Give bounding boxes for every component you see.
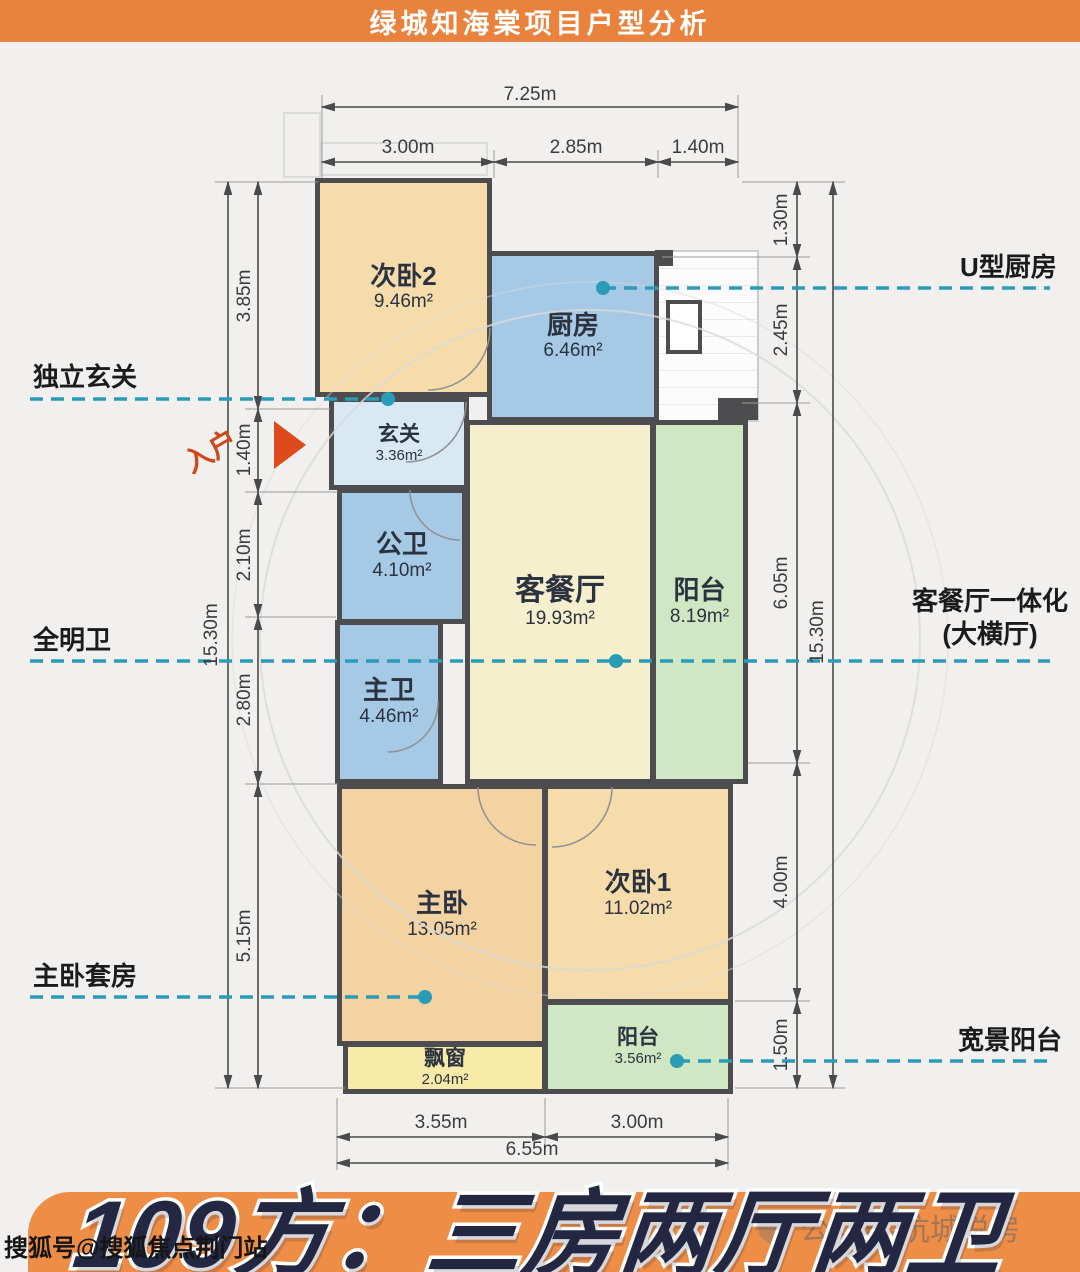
room-name: 飘窗 — [424, 1047, 466, 1070]
room-label: 次卧1 11.02m² — [604, 868, 672, 919]
watermark-sohu: 搜狐号@搜狐焦点荆门站 — [4, 1228, 267, 1263]
room-master-bedroom: 主卧 13.05m² — [337, 784, 547, 1046]
entry-arrow-icon — [274, 421, 306, 469]
dim-right-total: 15.30m — [807, 600, 829, 663]
room-label: 主卧 13.05m² — [407, 889, 477, 940]
dim-left-5: 5.15m — [234, 910, 256, 963]
callout-wide-balcony: 宽景阳台 — [958, 1020, 1062, 1057]
room-bedroom-2: 次卧2 9.46m² — [315, 178, 492, 397]
dim-left-3: 2.10m — [234, 529, 256, 582]
room-label: 客餐厅 19.93m² — [515, 574, 605, 630]
room-bay-window: 飘窗 2.04m² — [343, 1042, 547, 1094]
room-area: 11.02m² — [604, 899, 672, 920]
room-label: 阳台 8.19m² — [670, 576, 729, 627]
room-area: 9.46m² — [374, 292, 433, 313]
room-label: 公卫 4.10m² — [372, 530, 431, 581]
room-name: 厨房 — [547, 311, 599, 340]
dim-top-3: 1.40m — [672, 137, 725, 159]
dim-top-2: 2.85m — [550, 137, 603, 159]
callout-bright-bathroom: 全明卫 — [33, 620, 111, 657]
poster-canvas: 绿城知海棠项目户型分析 次卧2 9.46m² 厨房 6.46m² 玄关 3.36… — [0, 0, 1080, 1272]
room-area: 3.36m² — [376, 448, 423, 465]
room-label: 主卫 4.46m² — [359, 676, 418, 727]
room-balcony-south: 阳台 3.56m² — [543, 1000, 733, 1094]
callout-u-kitchen: U型厨房 — [960, 247, 1057, 284]
room-label: 飘窗 2.04m² — [422, 1047, 469, 1089]
dim-left-total: 15.30m — [201, 603, 223, 666]
room-master-bath: 主卫 4.46m² — [335, 620, 443, 784]
room-kitchen: 厨房 6.46m² — [487, 251, 659, 422]
room-name: 主卫 — [363, 676, 415, 705]
wall-pier — [718, 398, 758, 420]
room-area: 4.10m² — [372, 561, 431, 582]
page-title: 绿城知海棠项目户型分析 — [370, 2, 711, 41]
room-balcony-main: 阳台 8.19m² — [651, 420, 748, 784]
room-label: 阳台 3.56m² — [615, 1026, 662, 1068]
dim-top-1: 3.00m — [382, 137, 435, 159]
room-area: 4.46m² — [359, 707, 418, 728]
room-name: 玄关 — [378, 423, 420, 446]
room-area: 8.19m² — [670, 607, 729, 628]
dim-right-3: 6.05m — [771, 557, 793, 610]
room-foyer: 玄关 3.36m² — [329, 397, 469, 490]
dim-bottom-2: 3.00m — [611, 1112, 664, 1134]
room-name: 阳台 — [617, 1026, 659, 1049]
dim-right-4: 4.00m — [771, 856, 793, 909]
callout-integrated-living-line1: 客餐厅一体化 — [900, 585, 1080, 618]
callout-integrated-living-line2: (大横厅) — [900, 618, 1080, 651]
room-area: 13.05m² — [407, 920, 477, 941]
room-name: 阳台 — [673, 576, 725, 605]
room-bedroom-1: 次卧1 11.02m² — [543, 784, 733, 1004]
room-label: 玄关 3.36m² — [376, 423, 423, 465]
dim-right-5: 1.50m — [771, 1019, 793, 1072]
room-area: 2.04m² — [422, 1072, 469, 1089]
room-guest-bath: 公卫 4.10m² — [337, 488, 467, 624]
callout-integrated-living: 客餐厅一体化 (大横厅) — [900, 585, 1080, 650]
room-name: 公卫 — [376, 530, 428, 559]
dim-right-2: 2.45m — [771, 304, 793, 357]
room-label: 厨房 6.46m² — [543, 311, 602, 362]
dim-left-4: 2.80m — [234, 674, 256, 727]
callout-independent-foyer: 独立玄关 — [33, 357, 137, 394]
room-name: 客餐厅 — [515, 574, 605, 607]
room-name: 次卧1 — [605, 868, 671, 897]
room-area: 19.93m² — [525, 609, 595, 630]
dim-top-total: 7.25m — [504, 84, 557, 106]
room-area: 3.56m² — [615, 1051, 662, 1068]
shaft-box — [666, 300, 702, 354]
dim-bottom-1: 3.55m — [415, 1112, 468, 1134]
room-name: 主卧 — [416, 889, 468, 918]
room-label: 次卧2 9.46m² — [370, 262, 436, 313]
header-banner: 绿城知海棠项目户型分析 — [0, 0, 1080, 42]
dim-right-1: 1.30m — [771, 194, 793, 247]
exterior-outline — [283, 112, 321, 178]
room-area: 6.46m² — [543, 341, 602, 362]
dim-left-1: 3.85m — [234, 270, 256, 323]
callout-master-suite: 主卧套房 — [33, 956, 137, 993]
room-name: 次卧2 — [370, 262, 436, 291]
room-living-dining: 客餐厅 19.93m² — [465, 420, 655, 784]
